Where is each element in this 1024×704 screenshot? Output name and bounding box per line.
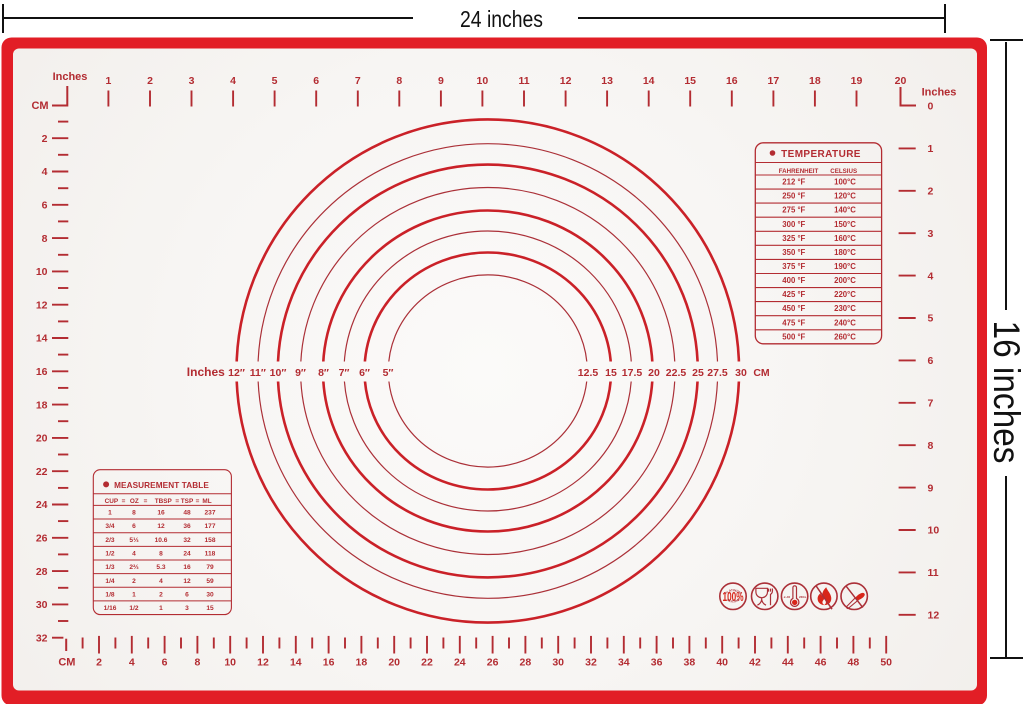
svg-text:50: 50	[880, 657, 892, 669]
svg-text:120°C: 120°C	[834, 192, 856, 201]
svg-text:=: =	[122, 498, 126, 505]
svg-text:240°C: 240°C	[834, 318, 856, 327]
svg-text:4: 4	[132, 551, 136, 558]
svg-text:118: 118	[205, 551, 216, 558]
svg-text:2/3: 2/3	[105, 537, 114, 544]
svg-text:7: 7	[928, 398, 934, 410]
svg-text:9: 9	[438, 75, 444, 87]
svg-text:19: 19	[851, 75, 863, 87]
svg-text:22: 22	[421, 657, 433, 669]
svg-text:9″: 9″	[295, 367, 306, 379]
svg-text:=: =	[196, 498, 200, 505]
svg-text:24: 24	[454, 657, 466, 669]
svg-text:13: 13	[601, 75, 613, 87]
svg-text:8: 8	[396, 75, 402, 87]
svg-text:1/3: 1/3	[105, 564, 114, 571]
svg-text:32: 32	[36, 632, 48, 644]
svg-text:260°C: 260°C	[834, 332, 856, 341]
svg-text:150°C: 150°C	[834, 220, 856, 229]
svg-text:1/2: 1/2	[105, 551, 114, 558]
svg-text:4: 4	[129, 657, 135, 669]
svg-text:48: 48	[848, 657, 860, 669]
svg-text:5: 5	[928, 313, 934, 325]
svg-text:46: 46	[815, 657, 827, 669]
svg-text:1: 1	[108, 510, 112, 517]
svg-text:475 °F: 475 °F	[782, 318, 805, 327]
svg-text:2: 2	[42, 133, 48, 145]
svg-text:30: 30	[552, 657, 564, 669]
svg-text:Inches: Inches	[922, 87, 957, 99]
svg-text:10: 10	[36, 266, 48, 278]
svg-text:11″: 11″	[250, 367, 266, 379]
svg-text:11: 11	[518, 75, 529, 87]
svg-text:4: 4	[230, 75, 236, 87]
svg-text:1: 1	[105, 75, 111, 87]
svg-text:6: 6	[132, 523, 136, 530]
svg-text:10: 10	[928, 525, 940, 537]
svg-text:200°C: 200°C	[834, 276, 856, 285]
svg-text:2⅔: 2⅔	[129, 564, 139, 571]
svg-text:3: 3	[928, 228, 934, 240]
svg-text:Inches: Inches	[53, 71, 88, 83]
svg-text:◄-40: ◄-40	[783, 595, 791, 599]
svg-text:40: 40	[716, 657, 728, 669]
svg-text:2: 2	[147, 75, 153, 87]
svg-text:3: 3	[185, 605, 189, 612]
svg-text:18: 18	[809, 75, 821, 87]
svg-text:24: 24	[36, 499, 48, 511]
svg-text:4: 4	[159, 578, 163, 585]
svg-text:6: 6	[185, 592, 189, 599]
svg-text:237: 237	[204, 510, 215, 517]
svg-text:22.5: 22.5	[666, 367, 687, 379]
svg-text:5: 5	[272, 75, 278, 87]
svg-text:4: 4	[928, 270, 934, 282]
svg-text:8: 8	[132, 510, 136, 517]
svg-text:425 °F: 425 °F	[782, 290, 805, 299]
svg-text:20: 20	[388, 657, 400, 669]
svg-text:1/16: 1/16	[104, 605, 117, 612]
svg-text:2: 2	[96, 657, 102, 669]
svg-text:16: 16	[323, 657, 335, 669]
svg-text:Inches: Inches	[187, 365, 225, 379]
svg-text:250 °F: 250 °F	[782, 192, 805, 201]
svg-text:500 °F: 500 °F	[782, 332, 805, 341]
svg-text:230°C: 230°C	[834, 304, 856, 313]
svg-text:36: 36	[183, 523, 191, 530]
svg-text:12.5: 12.5	[578, 367, 599, 379]
svg-text:79: 79	[206, 564, 214, 571]
svg-text:6″: 6″	[359, 367, 370, 379]
svg-text:5⅓: 5⅓	[129, 537, 139, 544]
svg-text:TEMPERATURE: TEMPERATURE	[781, 149, 861, 160]
svg-text:15: 15	[684, 75, 696, 87]
svg-text:7: 7	[355, 75, 361, 87]
svg-text:14: 14	[643, 75, 655, 87]
svg-text:5.3: 5.3	[156, 564, 165, 571]
svg-text:160°C: 160°C	[834, 234, 856, 243]
svg-text:177: 177	[204, 523, 215, 530]
svg-text:400 °F: 400 °F	[782, 276, 805, 285]
svg-text:4: 4	[42, 166, 48, 178]
svg-text:450 °F: 450 °F	[782, 304, 805, 313]
svg-text:32: 32	[585, 657, 597, 669]
svg-text:16: 16	[36, 366, 48, 378]
svg-text:6: 6	[162, 657, 168, 669]
svg-text:1/8: 1/8	[105, 592, 114, 599]
svg-text:CM: CM	[753, 367, 770, 379]
svg-text:16: 16	[726, 75, 738, 87]
svg-text:1: 1	[159, 605, 163, 612]
svg-text:TBSP: TBSP	[155, 498, 173, 505]
svg-text:26: 26	[36, 533, 48, 545]
svg-text:3: 3	[189, 75, 195, 87]
svg-text:12: 12	[928, 610, 940, 622]
svg-text:CELSIUS: CELSIUS	[830, 168, 857, 175]
svg-text:FAHRENHEIT: FAHRENHEIT	[779, 168, 819, 175]
svg-text:375 °F: 375 °F	[782, 262, 805, 271]
svg-text:9: 9	[928, 482, 934, 494]
svg-text:8: 8	[194, 657, 200, 669]
svg-text:22: 22	[36, 466, 48, 478]
svg-text:2: 2	[159, 592, 163, 599]
svg-text:18: 18	[356, 657, 368, 669]
svg-text:OZ: OZ	[130, 498, 139, 505]
svg-text:TSP: TSP	[181, 498, 194, 505]
svg-text:16: 16	[157, 510, 165, 517]
svg-text:11: 11	[928, 567, 939, 579]
svg-text:220°C: 220°C	[834, 290, 856, 299]
svg-text:28: 28	[36, 566, 48, 578]
svg-text:12: 12	[257, 657, 269, 669]
svg-text:16: 16	[183, 564, 191, 571]
svg-text:38: 38	[684, 657, 696, 669]
svg-text:12: 12	[36, 299, 48, 311]
svg-text:12: 12	[157, 523, 165, 530]
svg-text:0: 0	[928, 101, 934, 113]
svg-text:12″: 12″	[228, 367, 245, 379]
svg-text:212 °F: 212 °F	[782, 178, 805, 187]
svg-text:=: =	[175, 498, 179, 505]
svg-text:8: 8	[42, 233, 48, 245]
svg-text:MEASUREMENT TABLE: MEASUREMENT TABLE	[114, 481, 209, 490]
svg-text:2: 2	[928, 186, 934, 198]
svg-text:CM: CM	[31, 100, 48, 112]
svg-text:14: 14	[36, 333, 48, 345]
svg-text:10.6: 10.6	[155, 537, 168, 544]
svg-text:8″: 8″	[318, 367, 329, 379]
svg-text:CM: CM	[58, 657, 75, 669]
svg-text:18: 18	[36, 399, 48, 411]
svg-text:25: 25	[692, 367, 704, 379]
svg-text:ML: ML	[202, 498, 211, 505]
svg-text:59: 59	[206, 578, 214, 585]
svg-text:16 inches: 16 inches	[986, 321, 1024, 464]
svg-text:230►: 230►	[799, 595, 807, 599]
svg-text:24: 24	[183, 551, 191, 558]
svg-text:44: 44	[782, 657, 794, 669]
svg-text:8: 8	[928, 440, 934, 452]
svg-text:24 inches: 24 inches	[460, 6, 543, 32]
svg-text:20: 20	[648, 367, 660, 379]
svg-text:158: 158	[204, 537, 215, 544]
svg-text:8: 8	[159, 551, 163, 558]
svg-text:27.5: 27.5	[707, 367, 728, 379]
svg-text:180°C: 180°C	[834, 248, 856, 257]
svg-text:30: 30	[735, 367, 747, 379]
svg-text:20: 20	[895, 75, 907, 87]
svg-text:42: 42	[749, 657, 761, 669]
svg-text:1: 1	[928, 143, 934, 155]
svg-text:6: 6	[42, 200, 48, 212]
svg-text:34: 34	[618, 657, 630, 669]
svg-text:36: 36	[651, 657, 663, 669]
svg-text:32: 32	[183, 537, 191, 544]
svg-text:100°C: 100°C	[834, 178, 856, 187]
svg-text:30: 30	[36, 599, 48, 611]
svg-text:14: 14	[290, 657, 302, 669]
svg-text:10″: 10″	[270, 367, 287, 379]
svg-text:3/4: 3/4	[105, 523, 114, 530]
svg-text:350 °F: 350 °F	[782, 248, 805, 257]
svg-text:28: 28	[520, 657, 532, 669]
svg-text:275 °F: 275 °F	[782, 206, 805, 215]
svg-text:6: 6	[313, 75, 319, 87]
svg-text:26: 26	[487, 657, 499, 669]
svg-text:1/4: 1/4	[105, 578, 114, 585]
svg-text:300 °F: 300 °F	[782, 220, 805, 229]
svg-text:140°C: 140°C	[834, 206, 856, 215]
svg-text:10: 10	[224, 657, 236, 669]
svg-text:5″: 5″	[383, 367, 394, 379]
svg-text:30: 30	[206, 592, 214, 599]
svg-text:2: 2	[132, 578, 136, 585]
svg-text:6: 6	[928, 355, 934, 367]
svg-text:12: 12	[183, 578, 191, 585]
svg-text:12: 12	[560, 75, 572, 87]
svg-text:190°C: 190°C	[834, 262, 856, 271]
svg-text:1: 1	[132, 592, 136, 599]
svg-text:7″: 7″	[339, 367, 350, 379]
svg-text:15: 15	[206, 605, 214, 612]
svg-text:20: 20	[36, 433, 48, 445]
svg-text:17.5: 17.5	[622, 367, 643, 379]
svg-text:325 °F: 325 °F	[782, 234, 805, 243]
svg-text:15: 15	[605, 367, 617, 379]
svg-text:1/2: 1/2	[129, 605, 138, 612]
svg-text:17: 17	[768, 75, 780, 87]
svg-text:=: =	[144, 498, 148, 505]
svg-text:10: 10	[477, 75, 489, 87]
svg-text:48: 48	[183, 510, 191, 517]
svg-text:CUP: CUP	[105, 498, 119, 505]
